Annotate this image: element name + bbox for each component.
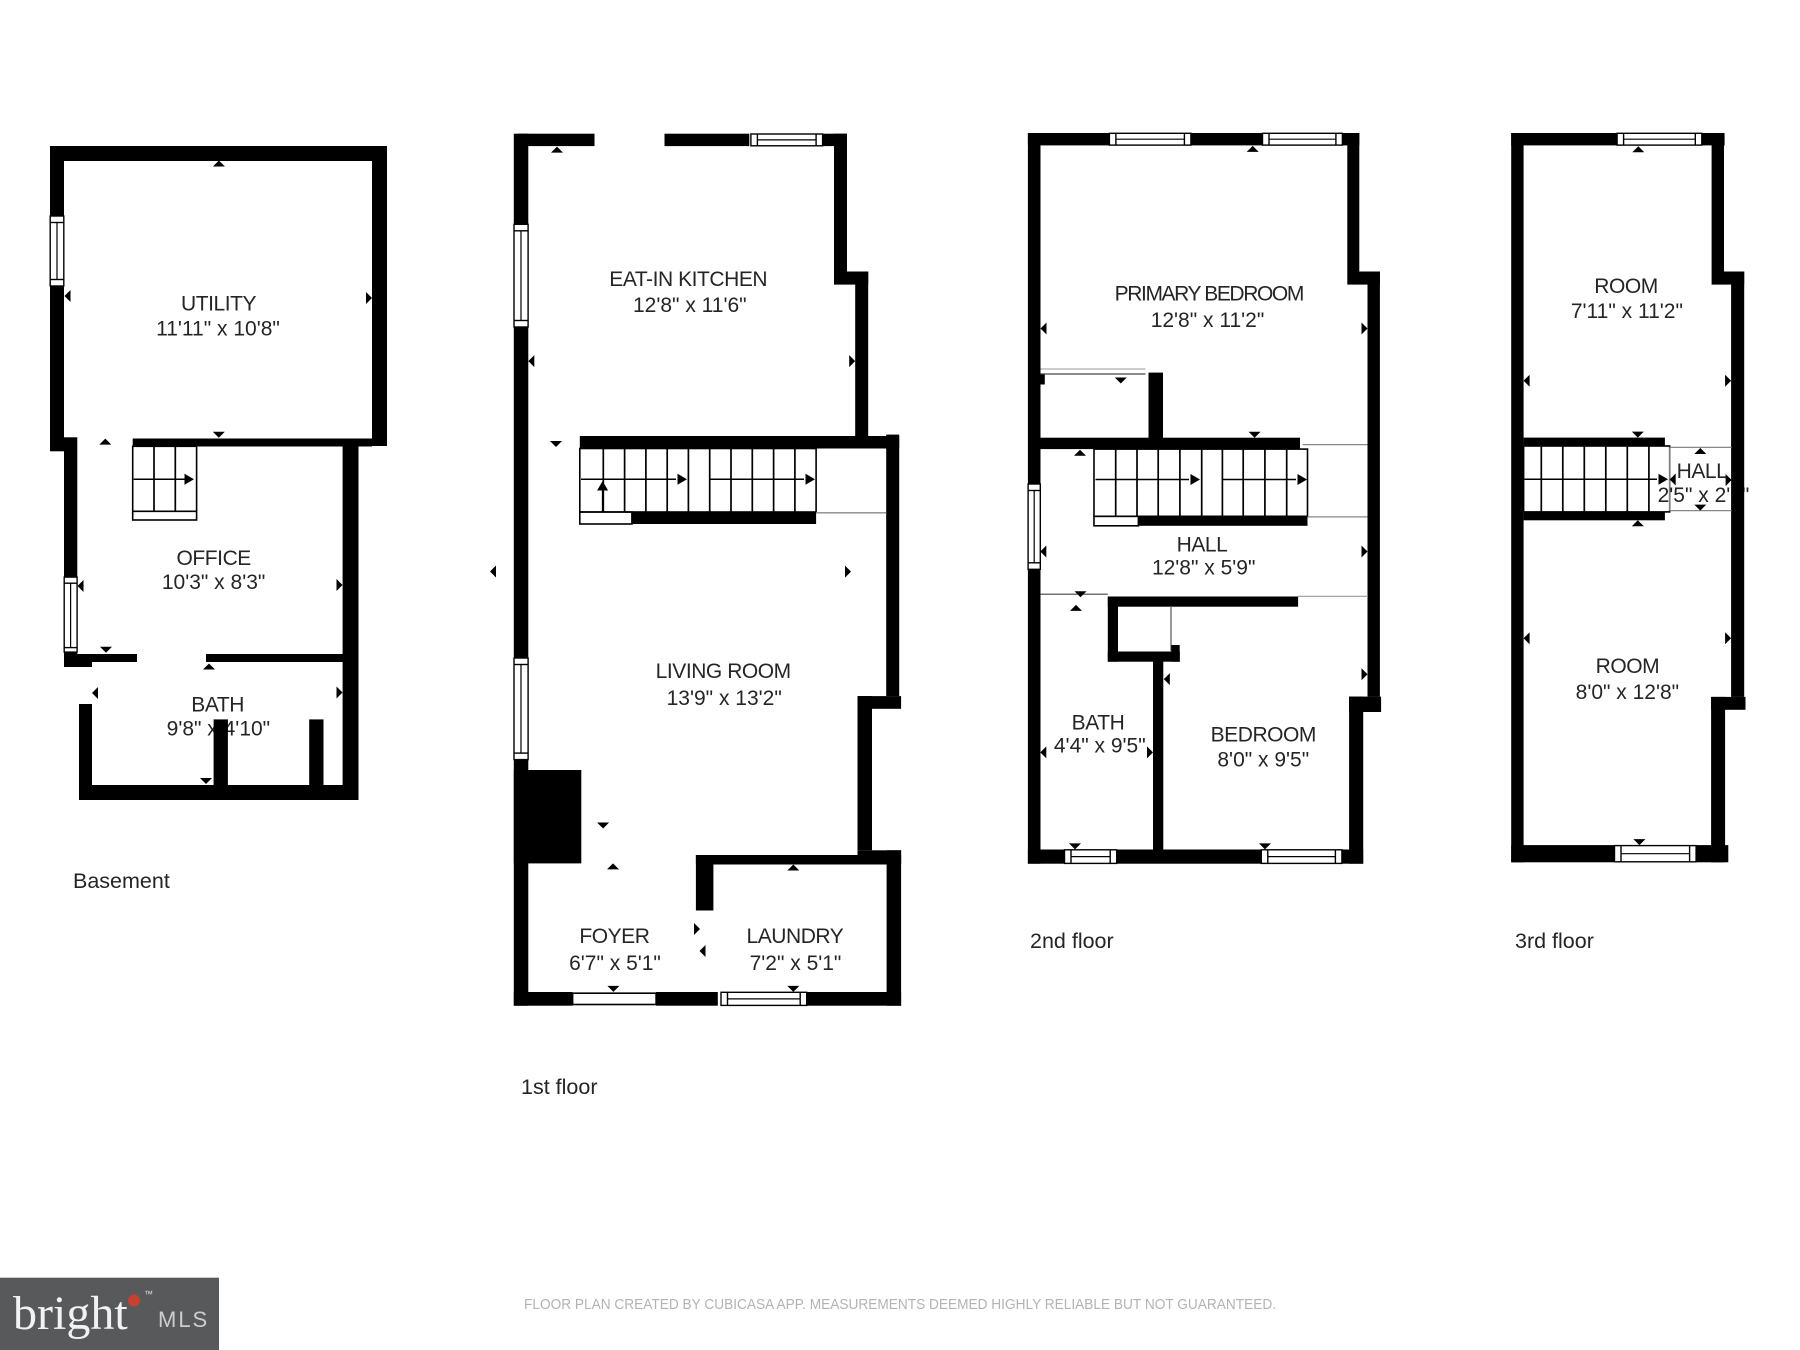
svg-text:EAT-IN KITCHEN: EAT-IN KITCHEN <box>609 268 767 291</box>
svg-text:12'8" x 5'9": 12'8" x 5'9" <box>1152 557 1256 580</box>
svg-text:6'7" x 5'1": 6'7" x 5'1" <box>569 952 661 975</box>
svg-text:13'9" x 13'2": 13'9" x 13'2" <box>667 687 782 710</box>
svg-text:BATH: BATH <box>1072 711 1125 734</box>
svg-text:ROOM: ROOM <box>1594 275 1658 298</box>
svg-text:Basement: Basement <box>73 869 170 893</box>
svg-text:FLOOR PLAN CREATED BY CUBICASA: FLOOR PLAN CREATED BY CUBICASA APP. MEAS… <box>524 1296 1276 1313</box>
svg-text:HALL: HALL <box>1177 534 1228 557</box>
svg-text:HALL: HALL <box>1677 460 1728 483</box>
svg-text:1st floor: 1st floor <box>521 1075 597 1099</box>
svg-text:12'8" x 11'6": 12'8" x 11'6" <box>633 294 747 317</box>
svg-text:BEDROOM: BEDROOM <box>1211 724 1316 747</box>
svg-text:LIVING ROOM: LIVING ROOM <box>656 660 791 683</box>
svg-text:4'4" x 9'5": 4'4" x 9'5" <box>1054 734 1146 757</box>
svg-text:LAUNDRY: LAUNDRY <box>746 925 843 948</box>
svg-text:3rd floor: 3rd floor <box>1515 929 1594 953</box>
svg-text:7'2" x 5'1": 7'2" x 5'1" <box>750 952 842 975</box>
svg-text:7'11" x 11'2": 7'11" x 11'2" <box>1571 300 1683 323</box>
svg-text:MLS: MLS <box>158 1307 209 1332</box>
svg-text:BATH: BATH <box>191 694 244 717</box>
svg-text:12'8" x 11'2": 12'8" x 11'2" <box>1151 309 1265 332</box>
svg-text:™: ™ <box>144 1289 153 1299</box>
svg-text:UTILITY: UTILITY <box>181 293 256 316</box>
svg-text:bright: bright <box>13 1287 128 1340</box>
svg-text:10'3" x 8'3": 10'3" x 8'3" <box>162 571 266 594</box>
svg-text:FOYER: FOYER <box>579 925 649 948</box>
svg-text:8'0" x 9'5": 8'0" x 9'5" <box>1217 749 1309 772</box>
svg-text:2nd floor: 2nd floor <box>1030 929 1114 953</box>
svg-text:8'0" x 12'8": 8'0" x 12'8" <box>1576 681 1680 704</box>
svg-text:PRIMARY BEDROOM: PRIMARY BEDROOM <box>1115 283 1303 306</box>
svg-text:11'11" x 10'8": 11'11" x 10'8" <box>156 318 280 341</box>
svg-text:OFFICE: OFFICE <box>177 547 252 570</box>
svg-text:ROOM: ROOM <box>1596 655 1660 678</box>
